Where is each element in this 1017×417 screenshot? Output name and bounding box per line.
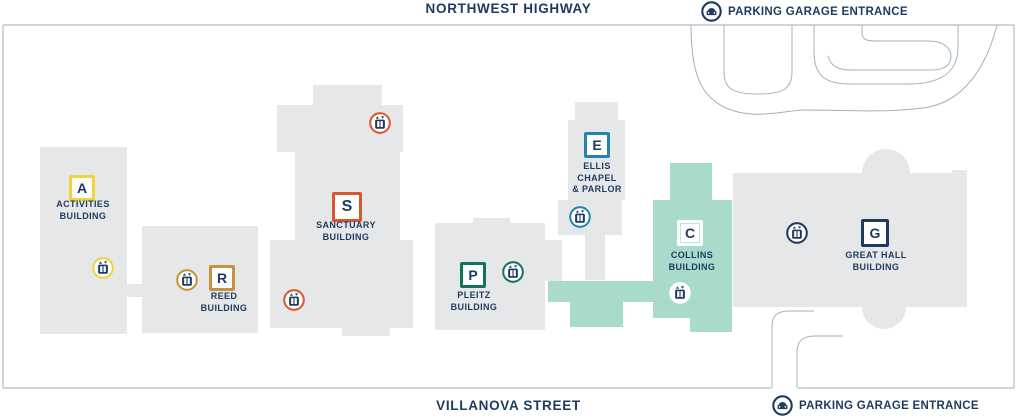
label-line: & PARLOR xyxy=(547,184,647,196)
driveway-road xyxy=(797,336,843,388)
label-line: BUILDING xyxy=(33,211,133,223)
elevator-icon xyxy=(502,261,524,283)
collins-building-label: COLLINS BUILDING xyxy=(642,250,742,273)
collins-building-badge[interactable]: C xyxy=(677,220,703,246)
pleitz-building-label: PLEITZ BUILDING xyxy=(424,290,524,313)
parking-garage-entrance-label: PARKING GARAGE ENTRANCE xyxy=(799,400,979,412)
pleitz-building-shape[interactable] xyxy=(435,223,545,330)
sanctuary-building-shape xyxy=(342,328,390,336)
ellis-chapel-shape xyxy=(575,102,618,120)
collins-building-shape xyxy=(690,318,732,332)
collins-walkway xyxy=(570,301,623,327)
great-hall-building-shape[interactable] xyxy=(733,173,952,307)
elevator-icon xyxy=(669,282,691,304)
great-hall-building-label: GREAT HALL BUILDING xyxy=(826,250,926,273)
pleitz-building-badge[interactable]: P xyxy=(460,262,486,288)
ellis-chapel-label: ELLIS CHAPEL & PARLOR xyxy=(547,161,647,196)
sanctuary-building-shape[interactable] xyxy=(270,240,413,328)
label-line: SANCTUARY xyxy=(296,220,396,232)
label-line: PLEITZ xyxy=(424,290,524,302)
sanctuary-building-shape[interactable] xyxy=(313,85,382,105)
car-icon xyxy=(772,395,793,416)
car-icon xyxy=(701,1,722,22)
great-hall-building[interactable]: G GREAT HALL BUILDING xyxy=(733,149,967,332)
label-line: REED xyxy=(174,291,274,303)
label-line: CHAPEL xyxy=(547,173,647,185)
activities-building[interactable]: A ACTIVITIES BUILDING xyxy=(40,147,127,334)
sanctuary-building-label: SANCTUARY BUILDING xyxy=(296,220,396,243)
label-line: BUILDING xyxy=(642,262,742,274)
reed-building-label: REED BUILDING xyxy=(174,291,274,314)
label-line: COLLINS xyxy=(642,250,742,262)
label-line: BUILDING xyxy=(424,302,524,314)
parking-garage-entrance-bottom: PARKING GARAGE ENTRANCE xyxy=(772,395,979,416)
elevator-icon xyxy=(176,269,198,291)
parking-ramp-road xyxy=(828,25,951,70)
pleitz-building[interactable]: P PLEITZ BUILDING xyxy=(435,218,563,330)
label-line: BUILDING xyxy=(296,232,396,244)
label-line: BUILDING xyxy=(826,262,926,274)
elevator-icon xyxy=(786,222,808,244)
label-line: ELLIS xyxy=(547,161,647,173)
great-hall-building-shape xyxy=(952,170,967,307)
reed-building-badge[interactable]: R xyxy=(209,265,235,291)
reed-building-connector xyxy=(126,284,142,297)
great-hall-building-badge[interactable]: G xyxy=(861,219,889,247)
reed-building[interactable]: R REED BUILDING xyxy=(126,221,258,333)
elevator-icon xyxy=(569,206,591,228)
activities-building-label: ACTIVITIES BUILDING xyxy=(33,199,133,222)
badge-inner-line xyxy=(680,223,700,243)
sanctuary-building-badge[interactable]: S xyxy=(332,192,362,222)
sanctuary-building[interactable]: S SANCTUARY BUILDING xyxy=(270,85,413,336)
label-line: GREAT HALL xyxy=(826,250,926,262)
parking-ramp-road xyxy=(724,25,792,94)
parking-garage-entrance-top: PARKING GARAGE ENTRANCE xyxy=(701,1,908,22)
parking-ramp-road xyxy=(814,25,958,84)
reed-building-shape[interactable] xyxy=(142,226,258,333)
parking-garage-entrance-label: PARKING GARAGE ENTRANCE xyxy=(728,6,908,18)
elevator-icon xyxy=(369,112,391,134)
elevator-icon xyxy=(92,257,114,279)
collins-walkway xyxy=(548,281,655,302)
collins-building-shape[interactable] xyxy=(670,163,712,200)
label-line: BUILDING xyxy=(174,303,274,315)
label-line: ACTIVITIES xyxy=(33,199,133,211)
elevator-icon xyxy=(283,289,305,311)
ellis-chapel-badge[interactable]: E xyxy=(584,132,610,158)
campus-map: NORTHWEST HIGHWAY VILLANOVA STREET PARKI… xyxy=(0,0,1017,417)
activities-building-badge[interactable]: A xyxy=(69,175,95,201)
